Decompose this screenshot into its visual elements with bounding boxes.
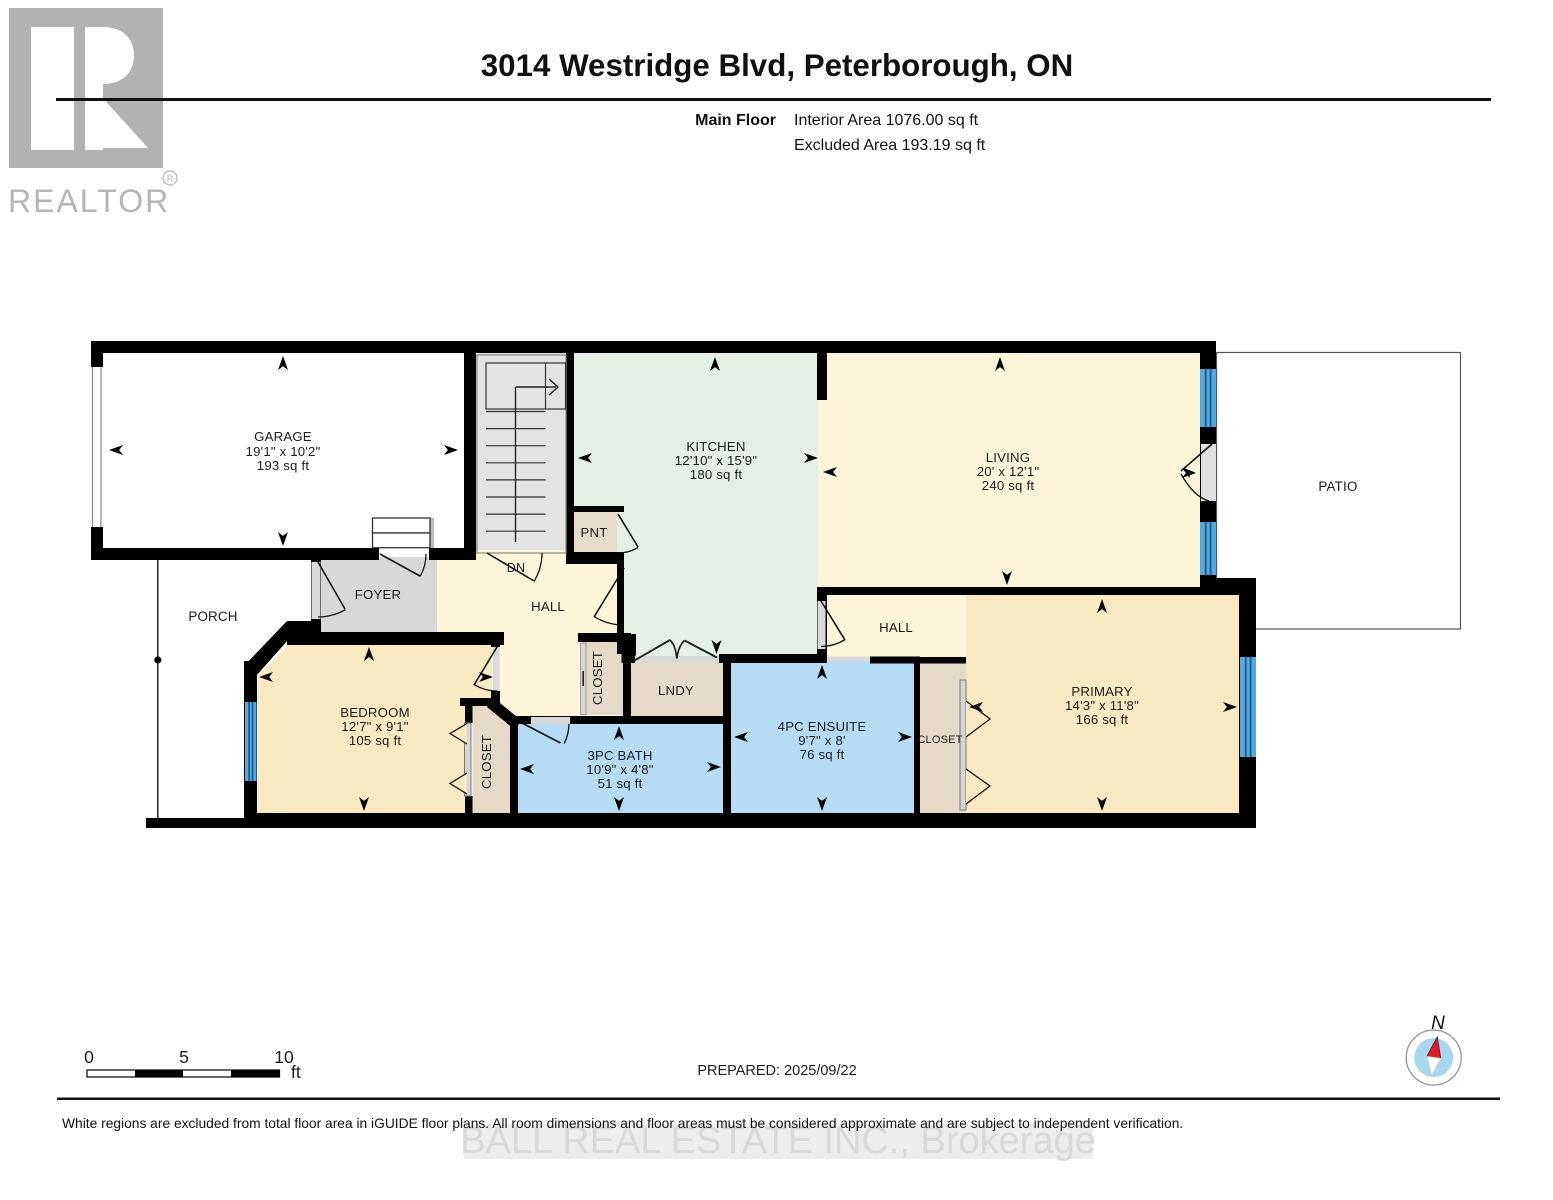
svg-text:20' x 12'1": 20' x 12'1" — [977, 464, 1040, 479]
svg-text:193 sq ft: 193 sq ft — [257, 458, 310, 473]
svg-text:LNDY: LNDY — [658, 683, 694, 698]
svg-text:180 sq ft: 180 sq ft — [690, 467, 743, 482]
svg-text:12'7" x 9'1": 12'7" x 9'1" — [341, 719, 409, 734]
svg-text:Excluded Area 193.19 sq ft: Excluded Area 193.19 sq ft — [794, 137, 986, 154]
svg-text:51 sq ft: 51 sq ft — [598, 776, 643, 791]
svg-text:FOYER: FOYER — [355, 587, 401, 602]
svg-text:12'10" x 15'9": 12'10" x 15'9" — [675, 453, 758, 468]
svg-text:14'3" x 11'8": 14'3" x 11'8" — [1065, 698, 1139, 713]
svg-text:ft: ft — [291, 1062, 301, 1082]
svg-text:10'9" x 4'8": 10'9" x 4'8" — [586, 762, 654, 777]
svg-text:KITCHEN: KITCHEN — [686, 439, 745, 454]
svg-text:240 sq ft: 240 sq ft — [982, 478, 1035, 493]
svg-text:REALTOR: REALTOR — [8, 183, 170, 219]
svg-text:PREPARED: 2025/09/22: PREPARED: 2025/09/22 — [697, 1063, 856, 1079]
svg-text:166 sq ft: 166 sq ft — [1076, 712, 1129, 727]
svg-text:DN: DN — [507, 561, 525, 575]
svg-text:HALL: HALL — [879, 620, 913, 635]
svg-text:5: 5 — [179, 1047, 189, 1067]
svg-text:LIVING: LIVING — [986, 450, 1030, 465]
svg-text:0: 0 — [84, 1047, 94, 1067]
svg-text:GARAGE: GARAGE — [254, 429, 312, 444]
svg-text:PRIMARY: PRIMARY — [1071, 684, 1132, 699]
svg-text:PORCH: PORCH — [188, 609, 237, 624]
svg-text:HALL: HALL — [531, 599, 565, 614]
svg-text:Interior Area 1076.00 sq ft: Interior Area 1076.00 sq ft — [794, 112, 979, 129]
svg-text:R: R — [167, 174, 174, 184]
svg-text:CLOSET: CLOSET — [590, 651, 605, 705]
svg-text:CLOSET: CLOSET — [479, 735, 494, 789]
svg-text:4PC ENSUITE: 4PC ENSUITE — [778, 719, 867, 734]
svg-text:Main Floor: Main Floor — [695, 112, 776, 129]
svg-text:White regions are excluded fro: White regions are excluded from total fl… — [62, 1116, 1183, 1131]
svg-text:PNT: PNT — [581, 525, 608, 540]
svg-text:19'1" x 10'2": 19'1" x 10'2" — [246, 444, 321, 459]
svg-text:76 sq ft: 76 sq ft — [800, 747, 845, 762]
svg-text:9'7" x 8': 9'7" x 8' — [798, 733, 845, 748]
svg-text:BEDROOM: BEDROOM — [340, 705, 410, 720]
svg-text:PATIO: PATIO — [1318, 479, 1357, 494]
svg-text:CLOSET: CLOSET — [917, 734, 962, 746]
svg-text:3PC BATH: 3PC BATH — [587, 748, 652, 763]
svg-text:105 sq ft: 105 sq ft — [349, 733, 402, 748]
svg-text:3014 Westridge Blvd, Peterboro: 3014 Westridge Blvd, Peterborough, ON — [481, 48, 1073, 83]
